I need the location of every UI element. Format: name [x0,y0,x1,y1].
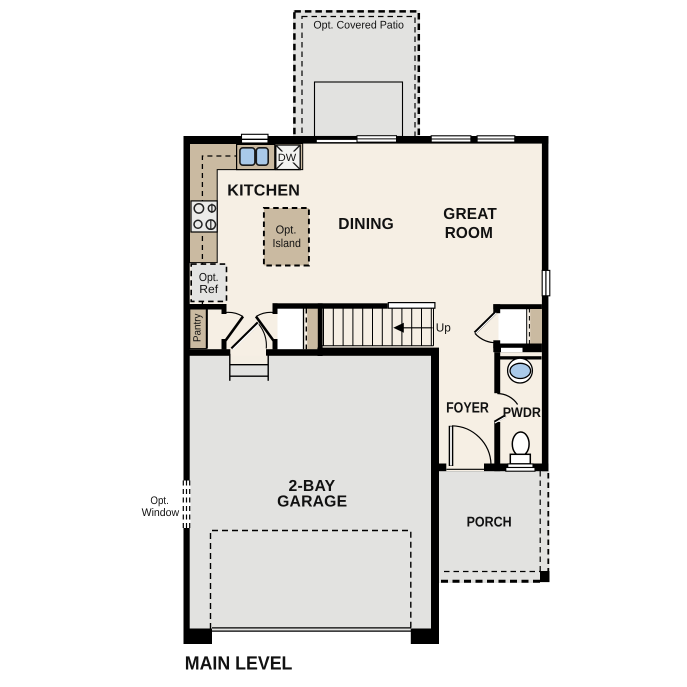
svg-text:DW: DW [278,152,296,164]
svg-text:ROOM: ROOM [445,225,493,242]
svg-text:Opt.: Opt. [276,223,297,236]
svg-text:Opt.: Opt. [150,495,168,507]
svg-text:KITCHEN: KITCHEN [227,183,300,200]
svg-text:GREAT: GREAT [443,206,497,223]
svg-text:Opt.: Opt. [199,271,219,284]
svg-text:Island: Island [273,237,301,250]
svg-text:Ref: Ref [199,283,219,296]
svg-text:FOYER: FOYER [446,400,489,416]
svg-text:Pantry: Pantry [192,313,204,342]
svg-text:GARAGE: GARAGE [277,494,347,511]
svg-text:Window: Window [142,507,180,519]
svg-text:Up: Up [436,321,452,335]
svg-text:2-BAY: 2-BAY [289,478,336,495]
svg-text:PORCH: PORCH [467,514,512,530]
svg-text:PWDR: PWDR [503,404,541,420]
svg-text:MAIN LEVEL: MAIN LEVEL [185,654,293,675]
svg-text:Opt. Covered Patio: Opt. Covered Patio [313,20,404,32]
svg-text:DINING: DINING [338,216,394,233]
